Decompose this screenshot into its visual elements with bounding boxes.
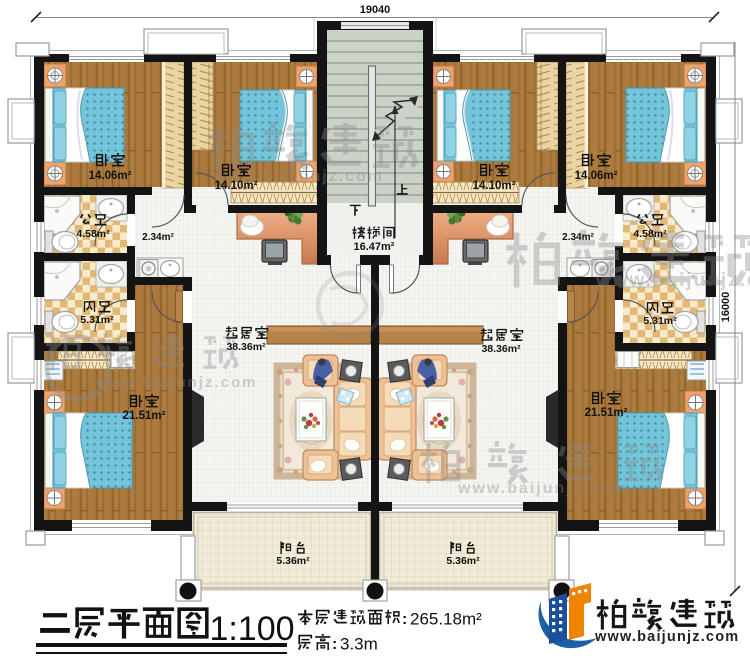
svg-text:265.18m²: 265.18m² [410,610,482,629]
svg-text:21.51m²: 21.51m² [585,407,628,419]
svg-text:21.51m²: 21.51m² [123,410,166,422]
svg-text:1:100: 1:100 [209,610,294,648]
svg-text:www.baijunjz.com: www.baijunjz.com [457,480,628,497]
svg-text:5.36m²: 5.36m² [276,555,310,567]
svg-text:5.36m²: 5.36m² [446,555,480,567]
svg-text:5.31m²: 5.31m² [643,315,677,327]
svg-text::: : [332,636,337,653]
svg-text:2.34m²: 2.34m² [562,232,594,243]
svg-text:14.06m²: 14.06m² [575,170,618,182]
svg-text:4.58m²: 4.58m² [76,228,110,240]
svg-text:4.58m²: 4.58m² [633,228,667,240]
svg-text:www.baijunjz.com: www.baijunjz.com [95,374,257,391]
svg-text:19040: 19040 [360,4,391,16]
svg-text:14.10m²: 14.10m² [473,180,516,192]
svg-text:3.3m: 3.3m [340,635,378,654]
svg-text::: : [402,611,407,628]
svg-text:38.36m²: 38.36m² [481,343,521,355]
svg-text:14.06m²: 14.06m² [89,170,132,182]
svg-text:16000: 16000 [720,292,732,323]
svg-text:www.baijunjz.com: www.baijunjz.com [594,629,739,645]
svg-text:2.34m²: 2.34m² [142,232,174,243]
svg-text:16.47m²: 16.47m² [354,241,395,253]
svg-text:5.31m²: 5.31m² [80,314,114,326]
svg-text:www.baijunjz.com: www.baijunjz.com [595,270,750,291]
svg-text:38.36m²: 38.36m² [226,341,266,353]
svg-text:14.10m²: 14.10m² [215,180,258,192]
